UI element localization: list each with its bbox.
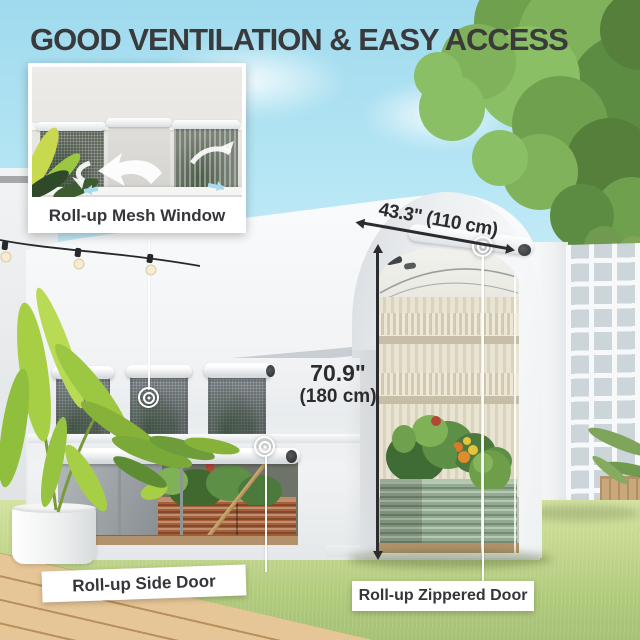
bed-flowers [438,433,519,489]
arrow-left-icon [355,217,366,228]
side-door-roll-cap [286,450,297,463]
inset-card-mesh-window: Roll-up Mesh Window [28,63,246,233]
frame-post [180,455,183,543]
interior-shelf [378,335,519,344]
window-rail [28,434,360,443]
mesh-window [56,373,110,437]
rolled-door-bar-cap [518,244,531,256]
frame-post [118,455,121,543]
string-lights [0,228,220,298]
door-height-dimension: 70.9" (180 cm) [296,360,380,408]
door-height-inches: 70.9" [296,360,380,386]
door-height-cm: (180 cm) [296,386,380,408]
window-roll [204,363,272,378]
door-edge-tape [514,247,516,553]
inset-photo [32,67,242,197]
window-roll [126,365,192,378]
zipper-target-icon [138,387,159,408]
raised-bed-corner [380,479,422,545]
front-door-opening [378,247,519,553]
window-roll-cap [266,365,275,377]
shelf-items [378,313,519,335]
page-title: GOOD VENTILATION & EASY ACCESS [30,22,610,58]
arrow-right-icon [505,243,516,254]
mesh-window-label: Roll-up Mesh Window [28,199,246,233]
arrow-down-icon [373,551,383,560]
airflow-arrow-icon [32,67,242,197]
mesh-window [130,373,188,437]
arrow-up-icon [373,244,383,253]
zippered-door-label: Roll-up Zippered Door [352,581,534,611]
mesh-window [208,373,266,437]
plant-pot [12,506,96,564]
cloud [360,80,520,150]
zipper-target-icon [254,436,275,457]
plant-pot-rim [12,503,96,513]
callout-line-side-door [265,456,267,572]
product-scene: Roll-up Mesh Window 43.3" (110 cm) 70.9"… [0,0,640,640]
callout-line-zippered-door [482,255,484,583]
window-roll [52,366,114,379]
